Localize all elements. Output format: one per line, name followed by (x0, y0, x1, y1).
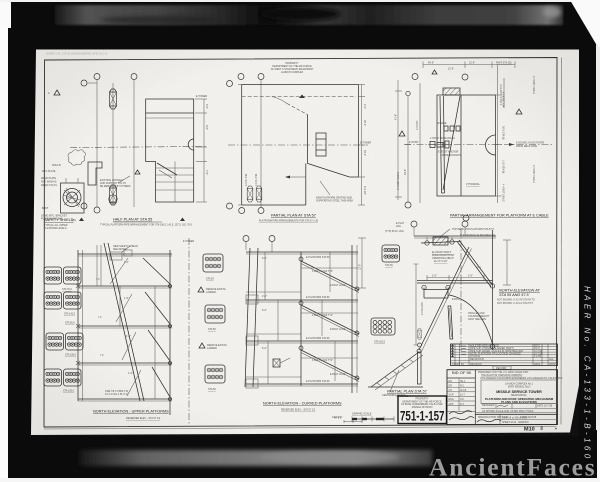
svg-text:AncientFaces: AncientFaces (429, 453, 596, 482)
svg-text:HAER No. CA-133-1-B-160: HAER No. CA-133-1-B-160 (583, 286, 592, 462)
